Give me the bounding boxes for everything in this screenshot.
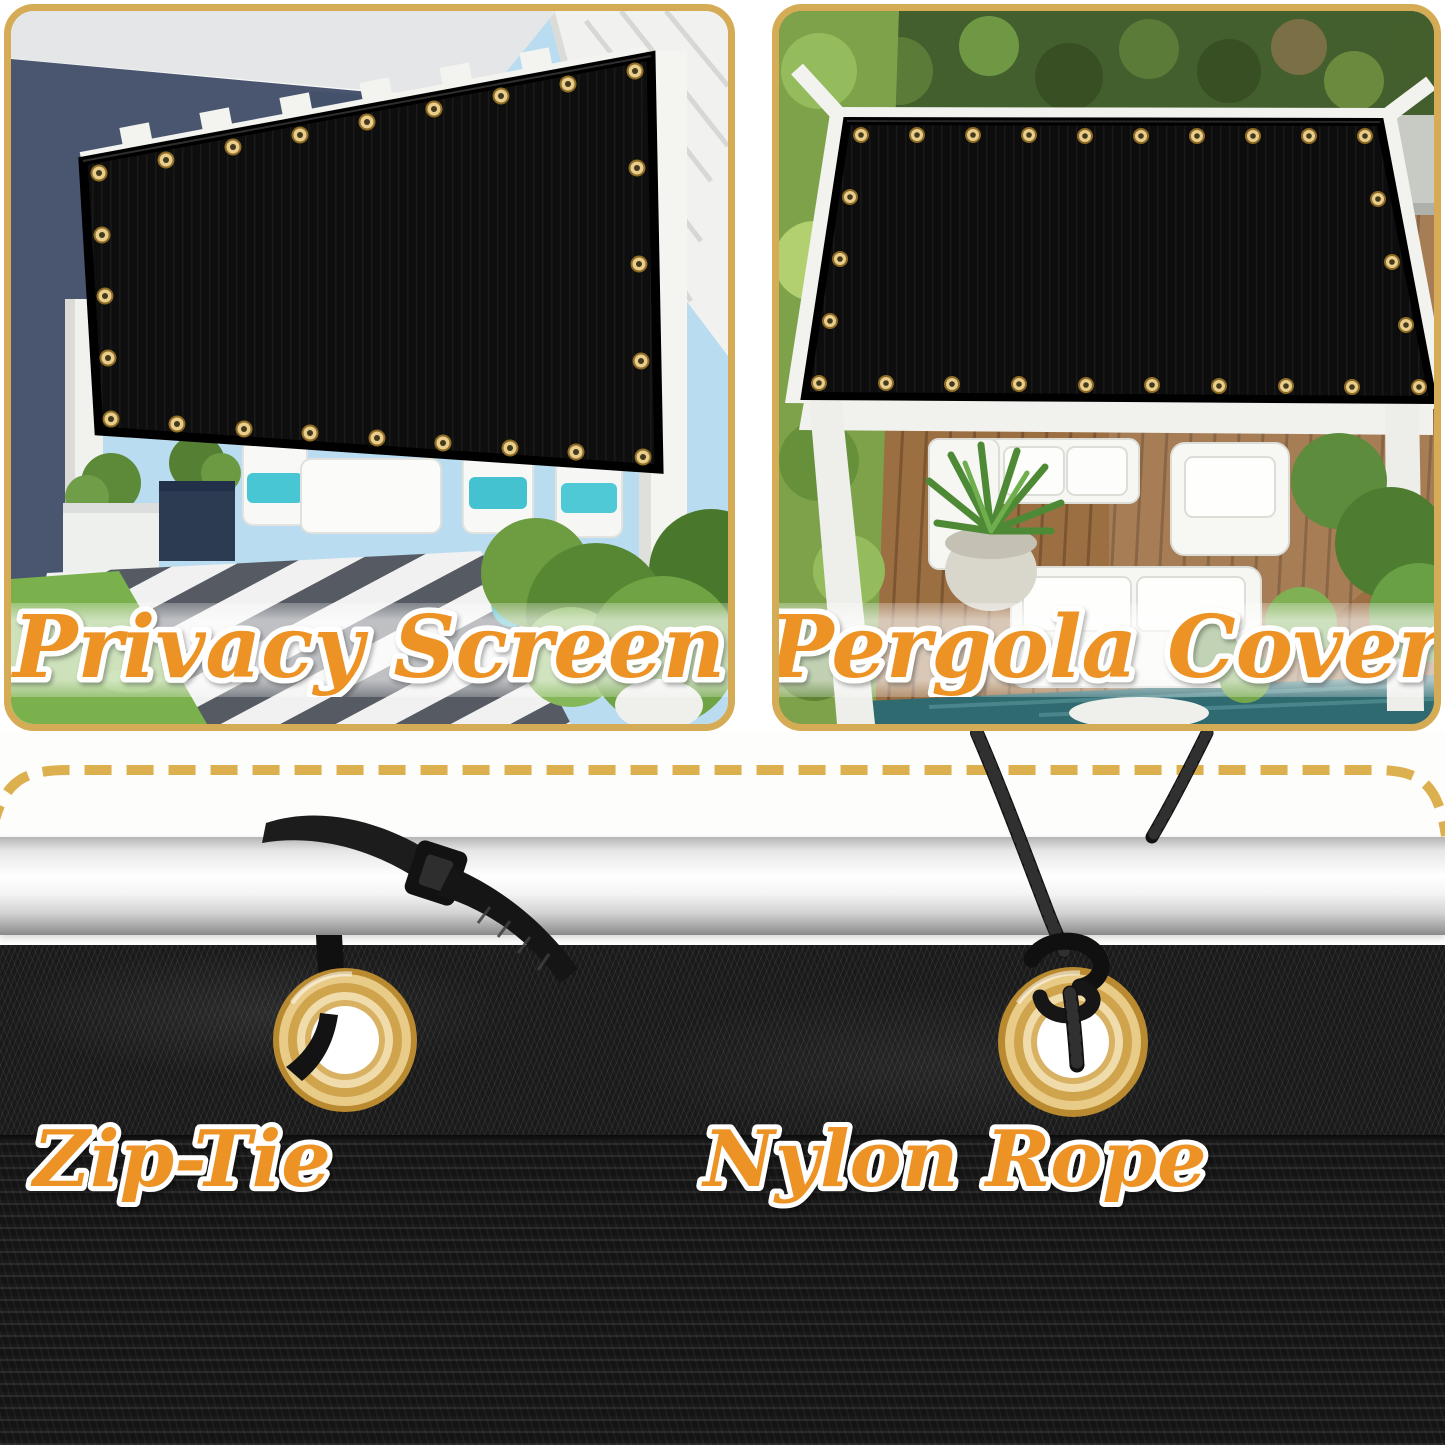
privacy-screen-panel: Privacy Screen <box>4 4 735 731</box>
product-infographic: Privacy Screen <box>0 0 1445 1445</box>
pergola-cover-panel: Pergola Cover <box>772 4 1441 731</box>
pergola-cover-caption-band: Pergola Cover <box>779 603 1434 697</box>
privacy-screen-caption-band: Privacy Screen <box>11 603 728 697</box>
installation-overlay: Zip-Tie Nylon Rope <box>0 731 1445 1445</box>
zip-tie-label: Zip-Tie <box>30 1114 331 1205</box>
pergola-cover-fabric <box>805 121 1433 400</box>
installation-detail-panel: Zip-Tie Nylon Rope <box>0 731 1445 1445</box>
nylon-rope-label: Nylon Rope <box>700 1114 1206 1205</box>
pergola-cover-caption: Pergola Cover <box>779 603 1434 697</box>
grommet-icon <box>273 968 417 1112</box>
privacy-screen-caption: Privacy Screen <box>11 603 725 697</box>
gold-dashed-border <box>0 770 1445 836</box>
